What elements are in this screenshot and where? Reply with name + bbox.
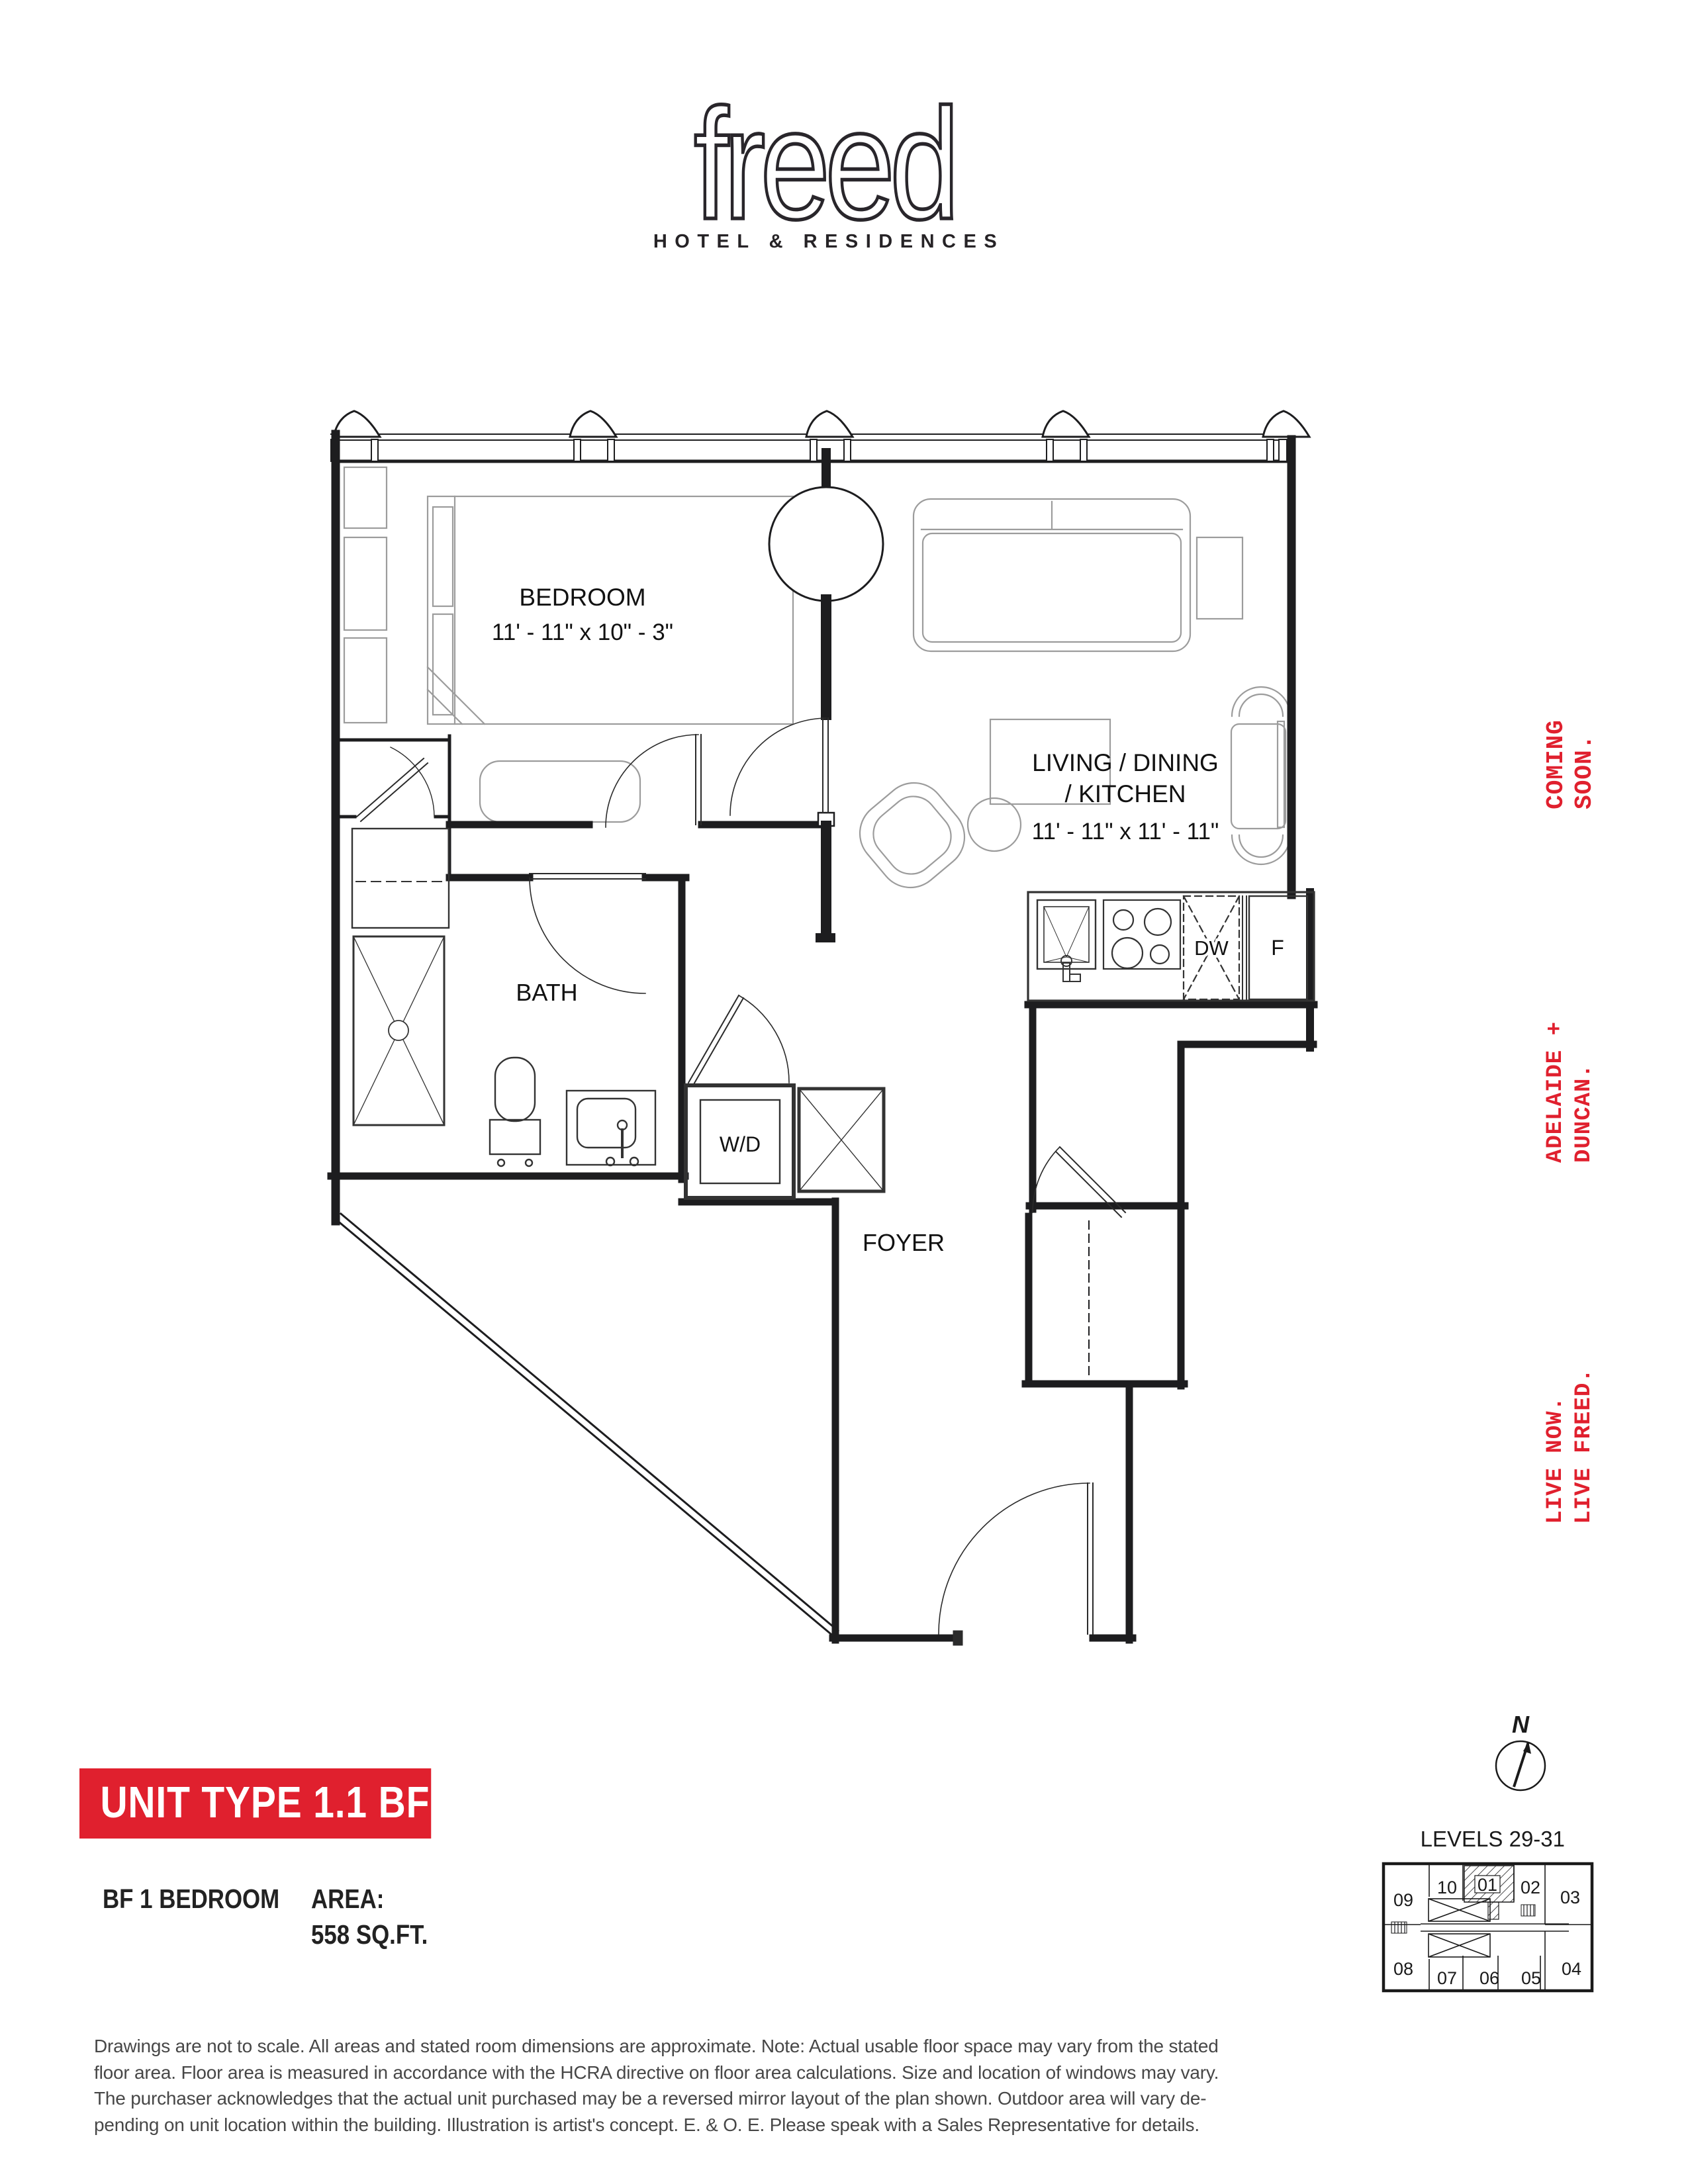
side-text-line: COMING (1542, 719, 1570, 809)
side-text-line: LIVE NOW. (1542, 1368, 1570, 1524)
dresser (344, 638, 387, 723)
room-labels: BEDROOM 11' - 11" x 10" - 3" LIVING / DI… (492, 584, 1284, 1256)
north-arrow: N (1496, 1711, 1545, 1790)
floorplan-page: { "colors": {"red":"#E0202E","ink":"#1D1… (0, 0, 1688, 2184)
dining-chair (1232, 687, 1290, 716)
unit-area-label: AREA: (311, 1884, 384, 1915)
bedroom-door (606, 735, 701, 827)
wd-label: W/D (720, 1132, 761, 1156)
wd-door (688, 995, 789, 1085)
wardrobe (352, 829, 449, 928)
keyplan-unit-04: 04 (1562, 1959, 1581, 1979)
shower (353, 936, 444, 1125)
keyplan-unit-03: 03 (1560, 1888, 1580, 1907)
nightstand (344, 467, 387, 528)
toilet (490, 1058, 540, 1166)
disclaimer-line: Drawings are not to scale. All areas and… (94, 2033, 1219, 2060)
bedroom-closet-door (357, 747, 434, 821)
keyplan-unit-08: 08 (1393, 1959, 1413, 1979)
unit-type-subtitle: BF 1 BEDROOM (103, 1884, 279, 1915)
cooktop (1103, 900, 1180, 969)
keyplan-unit-02: 02 (1521, 1878, 1540, 1897)
logo-subtitle: HOTEL & RESIDENCES (653, 231, 1004, 252)
unit-type-banner: UNIT TYPE 1.1 BF (79, 1768, 431, 1839)
brand-logo: freed HOTEL & RESIDENCES (653, 76, 1004, 252)
disclaimer-line: floor area. Floor area is measured in ac… (94, 2060, 1219, 2086)
side-table (1197, 537, 1243, 619)
side-text-line: DUNCAN. (1570, 1021, 1599, 1163)
disclaimer-line: The purchaser acknowledges that the actu… (94, 2085, 1219, 2112)
bath-sink (567, 1091, 655, 1165)
side-text-line: LIVE FREED. (1570, 1368, 1599, 1524)
shaft (799, 1089, 884, 1191)
bedroom-label: BEDROOM (519, 584, 645, 611)
entry-door (939, 1483, 1093, 1645)
disclaimer-line: pending on unit location within the buil… (94, 2112, 1219, 2138)
keyplan-unit-05: 05 (1521, 1968, 1541, 1988)
unit-type-banner-text: UNIT TYPE 1.1 BF (100, 1778, 430, 1827)
unit-area-value: 558 SQ.FT. (311, 1919, 428, 1950)
side-text-line: SOON. (1570, 719, 1599, 809)
keyplan: LEVELS 29-31 (1383, 1827, 1592, 1991)
north-label: N (1512, 1711, 1530, 1738)
divider-door (730, 718, 828, 815)
disclaimer: Drawings are not to scale. All areas and… (94, 2033, 1219, 2138)
dining-chair (1232, 835, 1290, 864)
walls (331, 411, 1314, 1640)
dw-label: DW (1194, 936, 1229, 960)
keyplan-unit-10: 10 (1437, 1878, 1457, 1897)
dresser (344, 537, 387, 630)
fixtures (352, 829, 1314, 1198)
bath-label: BATH (516, 979, 577, 1006)
kitchen-sink (1037, 900, 1096, 969)
side-text-line: ADELAIDE + (1542, 1021, 1570, 1163)
keyplan-unit-06: 06 (1479, 1968, 1499, 1988)
keyplan-unit-09: 09 (1393, 1890, 1413, 1910)
keyplan-unit-07: 07 (1437, 1968, 1457, 1988)
bath-door (530, 874, 645, 993)
pillow (433, 507, 453, 606)
keyplan-unit-01: 01 (1477, 1875, 1497, 1895)
living-label-2: / KITCHEN (1065, 780, 1186, 807)
foyer-label: FOYER (863, 1229, 945, 1256)
pillow (433, 614, 453, 715)
accent-chair (847, 770, 977, 900)
side-text-adelaide-duncan: ADELAIDE + DUNCAN. (1542, 1021, 1599, 1163)
floorplan-drawing: freed HOTEL & RESIDENCES (0, 0, 1688, 2184)
bedroom-dims: 11' - 11" x 10" - 3" (492, 619, 673, 645)
doors (357, 718, 1125, 1645)
wall-shelf (1278, 721, 1284, 827)
living-dims: 11' - 11" x 11' - 11" (1032, 819, 1219, 844)
fridge-label: F (1271, 936, 1284, 960)
living-label-1: LIVING / DINING (1032, 749, 1219, 776)
side-text-live-freed: LIVE NOW. LIVE FREED. (1542, 1368, 1599, 1524)
side-text-coming-soon: COMING SOON. (1542, 719, 1599, 809)
bench (480, 761, 640, 822)
ottoman (968, 798, 1021, 851)
keyplan-levels: LEVELS 29-31 (1421, 1827, 1565, 1851)
logo-wordmark: freed (694, 76, 955, 252)
floor-plan: BEDROOM 11' - 11" x 10" - 3" LIVING / DI… (331, 411, 1314, 1645)
